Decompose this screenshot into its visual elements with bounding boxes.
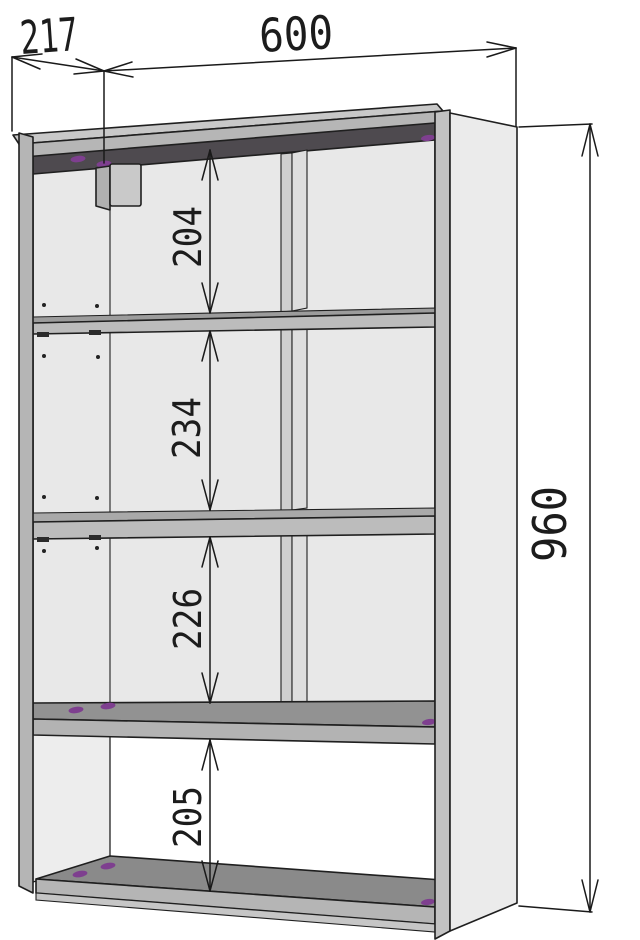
dim-gap-top-label: 204 <box>166 206 210 268</box>
bottom-panel <box>36 856 442 932</box>
shelf-pin <box>37 332 49 337</box>
shelf-pin <box>37 537 49 542</box>
middle-partition <box>281 150 307 706</box>
right-side-panel <box>435 110 517 939</box>
shelf-pin <box>89 330 101 335</box>
shelf-unit-drawing: 217 600 960 204 234 226 205 <box>0 0 640 940</box>
dim-gap-bottom-label: 205 <box>166 786 210 848</box>
dimension-drawing-canvas: 217 600 960 204 234 226 205 <box>0 0 640 940</box>
dim-depth-label: 217 <box>18 7 80 65</box>
left-side-panel <box>19 133 33 893</box>
dim-gap-third-label: 226 <box>166 588 210 650</box>
shelf-pin <box>89 535 101 540</box>
dim-height-label: 960 <box>523 486 577 562</box>
dim-gap-second-label: 234 <box>165 397 209 459</box>
wall-bracket <box>96 164 141 210</box>
back-panel <box>33 126 435 882</box>
dim-width-label: 600 <box>258 5 335 63</box>
